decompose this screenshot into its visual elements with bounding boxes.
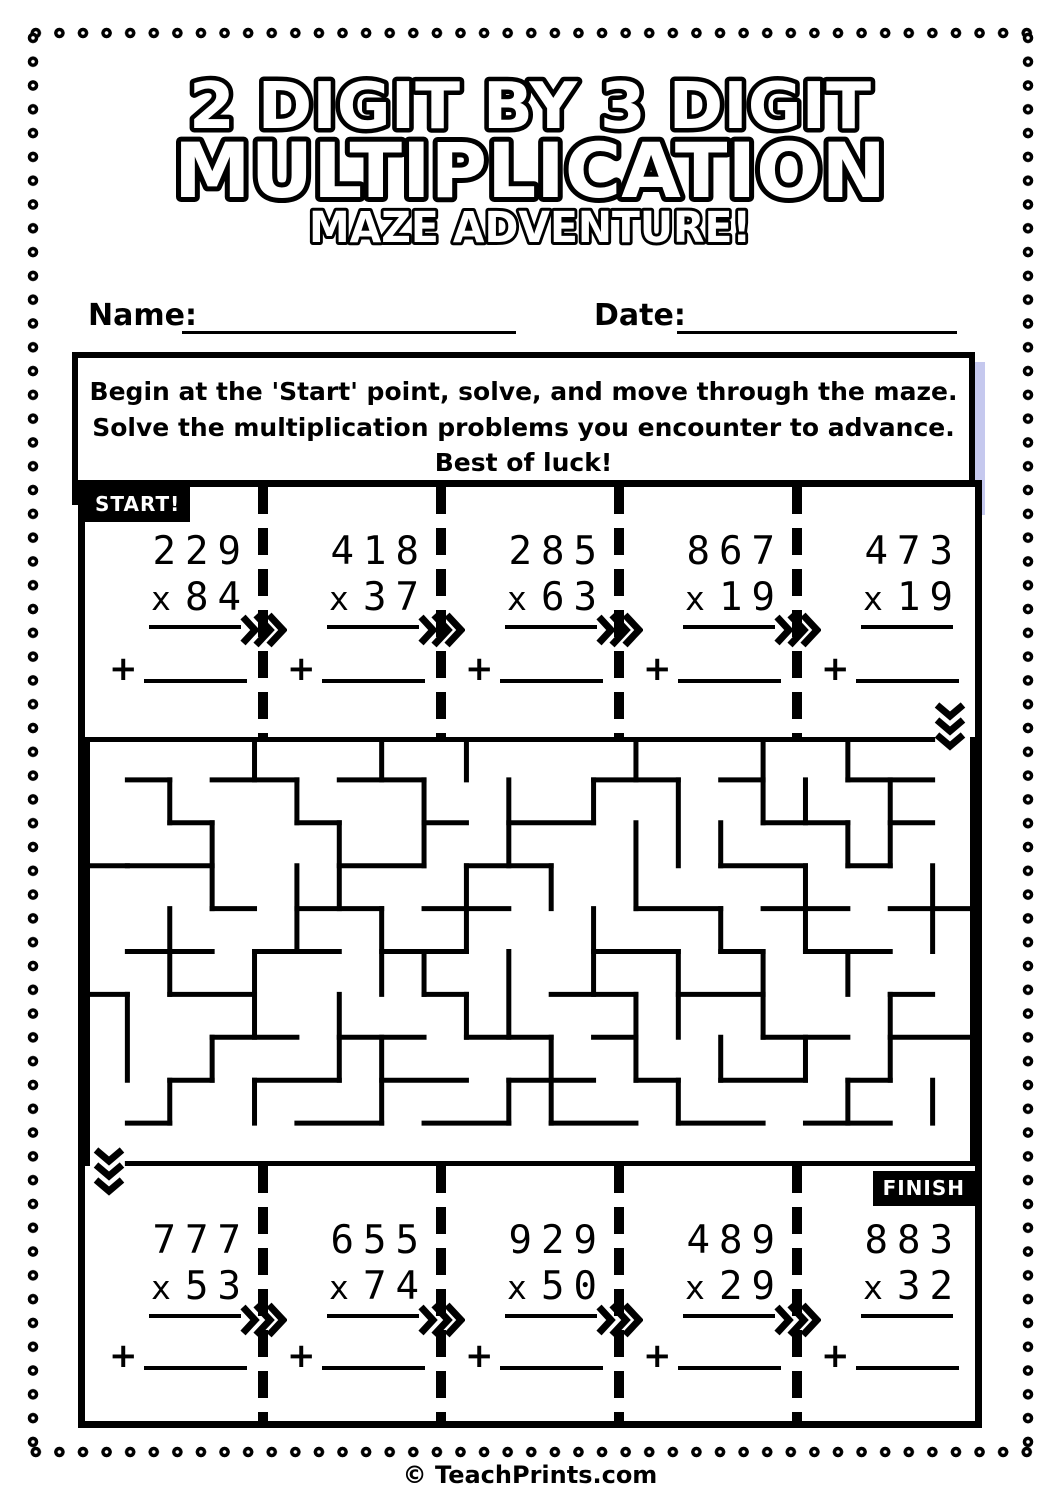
plus-sign: + bbox=[465, 654, 494, 685]
multiplicand: 777 bbox=[149, 1220, 250, 1263]
name-input-line[interactable] bbox=[182, 331, 516, 334]
answer-blank[interactable] bbox=[500, 1366, 604, 1370]
multiplication-problem: 777 x53 bbox=[149, 1220, 241, 1318]
answer-blank[interactable] bbox=[500, 679, 604, 683]
dashed-divider bbox=[436, 1166, 446, 1421]
answer-blank[interactable] bbox=[678, 1366, 782, 1370]
multiply-sign: x bbox=[685, 579, 705, 618]
multiplicand: 655 bbox=[327, 1220, 428, 1263]
answer-blank[interactable] bbox=[856, 1366, 960, 1370]
multiplicand: 473 bbox=[861, 531, 962, 574]
plus-sign: + bbox=[821, 1341, 850, 1372]
multiplicand: 883 bbox=[861, 1220, 962, 1263]
finish-badge: FINISH bbox=[873, 1171, 975, 1206]
multiplier: 19 bbox=[897, 577, 962, 620]
problem-cell: 285 x63 + bbox=[441, 487, 619, 737]
triple-chevron-right-icon bbox=[595, 1301, 643, 1339]
answer-blank[interactable] bbox=[322, 1366, 426, 1370]
answer-blank[interactable] bbox=[322, 679, 426, 683]
answer-blank[interactable] bbox=[144, 679, 248, 683]
plus-sign: + bbox=[465, 1341, 494, 1372]
problem-cell: 929 x50 + bbox=[441, 1166, 619, 1421]
multiply-sign: x bbox=[329, 579, 349, 618]
dashed-divider bbox=[258, 1166, 268, 1421]
multiply-sign: x bbox=[685, 1268, 705, 1307]
dashed-divider bbox=[792, 1166, 802, 1421]
problem-cell: 655 x74 + bbox=[263, 1166, 441, 1421]
footer-credit: © TeachPrints.com bbox=[0, 1461, 1060, 1489]
worksheet-frame: 229 x84 + 418 x37 + 285 x63 + bbox=[78, 480, 982, 1428]
multiplication-problem: 489 x29 bbox=[683, 1220, 775, 1318]
multiplication-problem: 285 x63 bbox=[505, 531, 597, 629]
multiply-sign: x bbox=[863, 579, 883, 618]
plus-sign: + bbox=[821, 654, 850, 685]
plus-sign: + bbox=[643, 654, 672, 685]
plus-sign: + bbox=[109, 654, 138, 685]
start-badge: START! bbox=[85, 487, 190, 522]
worksheet-page: 2 DIGIT BY 3 DIGIT MULTIPLICATION MAZE A… bbox=[0, 0, 1060, 1500]
triple-chevron-right-icon bbox=[239, 1301, 287, 1339]
problems-row-top: 229 x84 + 418 x37 + 285 x63 + bbox=[85, 487, 975, 737]
problem-cell: 473 x19 + bbox=[797, 487, 975, 737]
date-label: Date: bbox=[594, 298, 686, 333]
problem-cell: 418 x37 + bbox=[263, 487, 441, 737]
problems-row-bottom: 777 x53 + 655 x74 + 929 x50 + bbox=[85, 1166, 975, 1421]
triple-chevron-right-icon bbox=[417, 611, 465, 649]
triple-chevron-right-icon bbox=[417, 1301, 465, 1339]
plus-sign: + bbox=[643, 1341, 672, 1372]
triple-chevron-right-icon bbox=[773, 611, 821, 649]
multiplicand: 867 bbox=[683, 531, 784, 574]
multiplication-problem: 655 x74 bbox=[327, 1220, 419, 1318]
plus-sign: + bbox=[287, 1341, 316, 1372]
multiplicand: 418 bbox=[327, 531, 428, 574]
multiplication-problem: 473 x19 bbox=[861, 531, 953, 629]
multiply-sign: x bbox=[863, 1268, 883, 1307]
multiplication-problem: 418 x37 bbox=[327, 531, 419, 629]
problem-cell: 489 x29 + bbox=[619, 1166, 797, 1421]
maze[interactable] bbox=[85, 737, 975, 1166]
multiplicand: 285 bbox=[505, 531, 606, 574]
title: 2 DIGIT BY 3 DIGIT MULTIPLICATION MAZE A… bbox=[0, 56, 1060, 256]
multiplication-problem: 929 x50 bbox=[505, 1220, 597, 1318]
answer-blank[interactable] bbox=[144, 1366, 248, 1370]
plus-sign: + bbox=[287, 654, 316, 685]
triple-chevron-right-icon bbox=[239, 611, 287, 649]
multiplicand: 489 bbox=[683, 1220, 784, 1263]
answer-blank[interactable] bbox=[678, 679, 782, 683]
multiply-sign: x bbox=[507, 579, 527, 618]
multiplicand: 229 bbox=[149, 531, 250, 574]
problem-cell: 229 x84 + bbox=[85, 487, 263, 737]
problem-cell: 867 x19 + bbox=[619, 487, 797, 737]
title-line-2: MULTIPLICATION bbox=[174, 126, 886, 215]
multiply-sign: x bbox=[151, 1268, 171, 1307]
title-line-3: MAZE ADVENTURE! bbox=[309, 203, 751, 253]
multiplication-problem: 867 x19 bbox=[683, 531, 775, 629]
triple-chevron-down-icon bbox=[932, 701, 968, 757]
dashed-divider bbox=[614, 1166, 624, 1421]
plus-sign: + bbox=[109, 1341, 138, 1372]
multiply-sign: x bbox=[151, 579, 171, 618]
dotted-border-top bbox=[24, 27, 1036, 39]
triple-chevron-right-icon bbox=[773, 1301, 821, 1339]
name-label: Name: bbox=[88, 298, 197, 333]
multiply-sign: x bbox=[329, 1268, 349, 1307]
answer-blank[interactable] bbox=[856, 679, 960, 683]
triple-chevron-right-icon bbox=[595, 611, 643, 649]
dotted-border-bottom bbox=[24, 1446, 1036, 1458]
date-input-line[interactable] bbox=[677, 331, 957, 334]
multiplier: 32 bbox=[897, 1266, 962, 1309]
instruction-text: Begin at the 'Start' point, solve, and m… bbox=[90, 377, 958, 477]
triple-chevron-down-icon bbox=[91, 1146, 127, 1202]
maze-svg bbox=[85, 737, 975, 1166]
multiplication-problem: 229 x84 bbox=[149, 531, 241, 629]
multiplicand: 929 bbox=[505, 1220, 606, 1263]
multiplication-problem: 883 x32 bbox=[861, 1220, 953, 1318]
multiply-sign: x bbox=[507, 1268, 527, 1307]
problem-cell: 777 x53 + bbox=[85, 1166, 263, 1421]
